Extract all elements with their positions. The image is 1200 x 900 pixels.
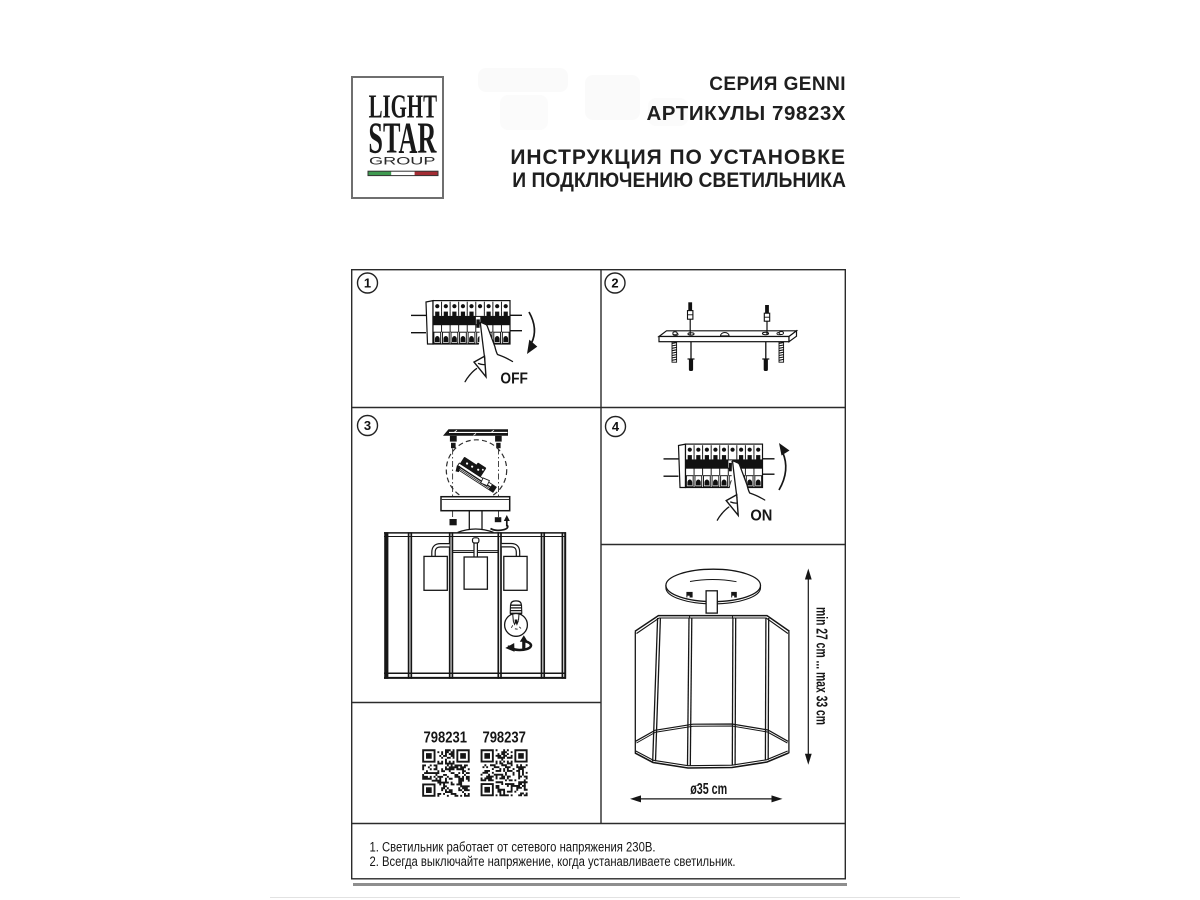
svg-text:798231: 798231 [424, 730, 468, 747]
svg-text:2: 2 [611, 276, 618, 291]
svg-text:OFF: OFF [500, 371, 528, 388]
svg-text:1. Светильник работает от сете: 1. Светильник работает от сетевого напря… [370, 840, 656, 855]
svg-text:1: 1 [364, 276, 371, 291]
svg-text:3: 3 [364, 418, 371, 433]
svg-text:ON: ON [750, 507, 772, 524]
svg-text:2. Всегда выключайте напряжени: 2. Всегда выключайте напряжение, когда у… [370, 854, 736, 869]
svg-text:798237: 798237 [482, 730, 526, 747]
svg-text:ø35 cm: ø35 cm [690, 781, 727, 798]
svg-text:min 27 cm ... max 33 cm: min 27 cm ... max 33 cm [812, 607, 829, 725]
svg-text:4: 4 [612, 419, 620, 434]
svg-text:GROUP: GROUP [369, 156, 436, 168]
